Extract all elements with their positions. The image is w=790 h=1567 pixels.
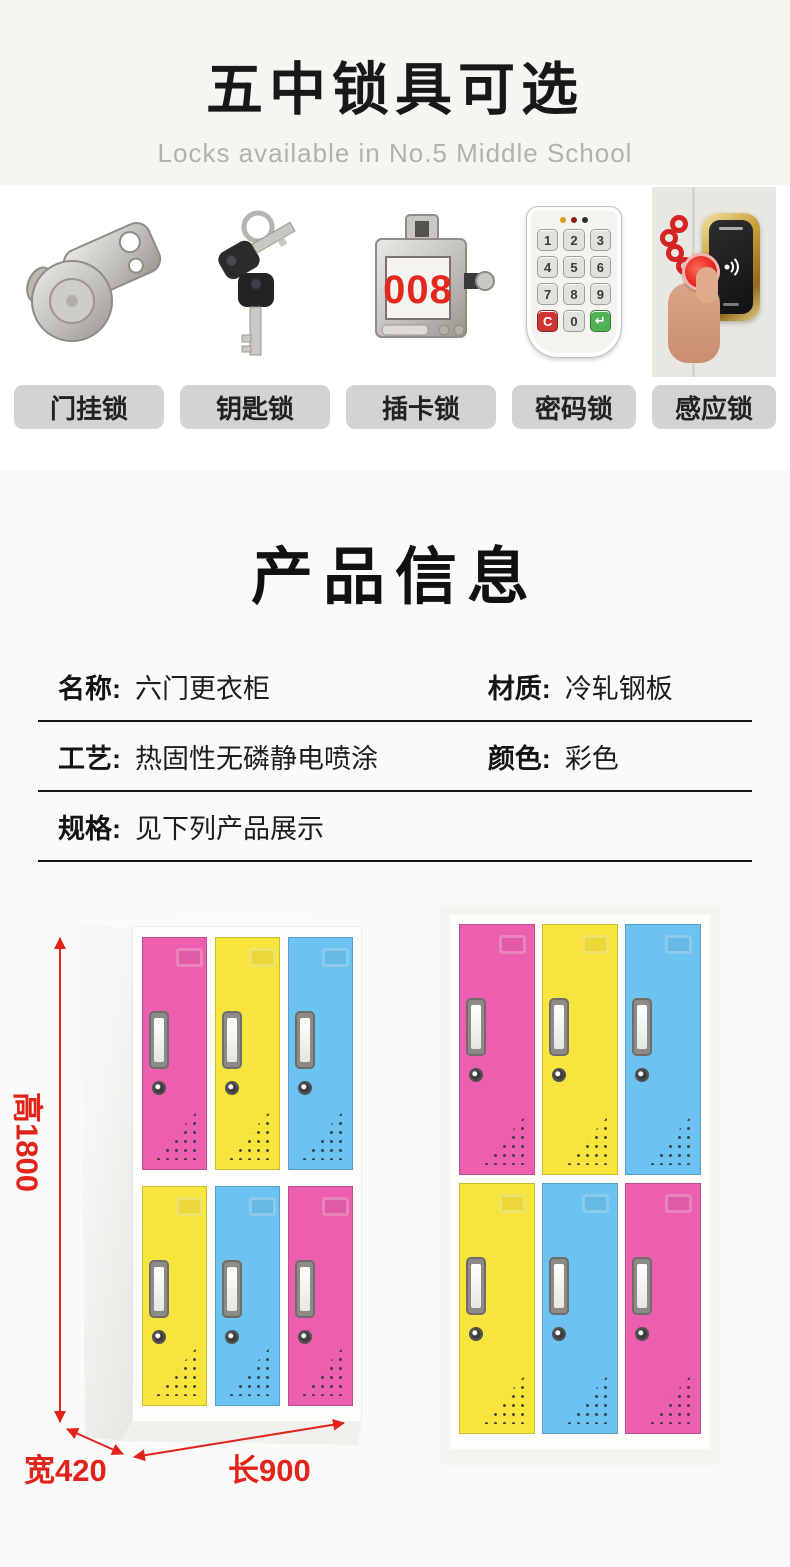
dimension-arrows: [0, 905, 400, 1525]
name-card-slot: [582, 935, 609, 954]
locker-door-yellow: [459, 1183, 535, 1434]
keys-photo: [180, 187, 330, 377]
rfid-lock-photo: [652, 187, 776, 377]
locker-door-pink: [459, 924, 535, 1175]
locker-frame: [450, 915, 710, 1449]
spec-cell: 材质: 冷轧钢板: [488, 667, 752, 706]
vent-holes: [482, 1115, 526, 1165]
keypad-key-7: 7: [537, 283, 558, 305]
lock-tile-cam: 门挂锁: [14, 187, 164, 429]
lock-tile-rfid: 感应锁: [652, 187, 776, 429]
section-title: 产品信息: [0, 470, 790, 616]
keypad-key-5: 5: [563, 256, 584, 278]
keyhole: [637, 1070, 647, 1080]
card-lock-icon: 008: [346, 187, 496, 377]
rfid-waves-icon: [719, 255, 743, 279]
spec-cell: 工艺: 热固性无磷静电喷涂: [38, 737, 488, 776]
vent-holes: [565, 1374, 609, 1424]
door-handle: [634, 1000, 650, 1054]
rfid-lock-icon: [652, 187, 776, 377]
height-dimension-label: 高1800: [8, 1092, 53, 1192]
keyhole: [471, 1070, 481, 1080]
spec-cell: 规格: 见下列产品展示: [38, 807, 488, 846]
locker-number-display: 008: [383, 268, 453, 312]
lock-tile-keys: 钥匙锁: [180, 187, 330, 429]
spec-label: 工艺:: [58, 737, 121, 776]
keypad-key-6: 6: [590, 256, 611, 278]
spec-cell: 名称: 六门更衣柜: [38, 667, 488, 706]
page-title: 五中锁具可选: [0, 0, 790, 126]
keyhole: [637, 1329, 647, 1339]
door-handle: [551, 1000, 567, 1054]
spec-label: 颜色:: [488, 737, 551, 776]
keypad-key-1: 1: [537, 229, 558, 251]
vent-holes: [482, 1374, 526, 1424]
keyhole: [554, 1329, 564, 1339]
led-red: [571, 217, 577, 223]
thumb: [696, 267, 718, 303]
lock-label-cam: 门挂锁: [14, 385, 164, 429]
header-section: 五中锁具可选 Locks available in No.5 Middle Sc…: [0, 0, 790, 185]
cam-lock-icon: [14, 187, 164, 377]
spec-value: 彩色: [565, 737, 619, 776]
keys-icon: [180, 187, 330, 377]
lock-label-card: 插卡锁: [346, 385, 496, 429]
name-card-slot: [665, 1194, 692, 1213]
keyhole: [471, 1329, 481, 1339]
page-subtitle: Locks available in No.5 Middle School: [0, 138, 790, 169]
locks-section: 门挂锁 钥匙锁: [0, 185, 790, 470]
width-dimension-label: 宽420: [24, 1445, 107, 1490]
spec-label: 名称:: [58, 667, 121, 706]
spec-table: 名称: 六门更衣柜 材质: 冷轧钢板 工艺: 热固性无磷静电喷涂 颜色: 彩色 …: [38, 652, 752, 862]
keypad-key-0: 0: [563, 310, 584, 332]
keypad-lock-icon: 1 2 3 4 5 6 7 8 9 C 0 ↵: [526, 206, 622, 358]
spec-label: 规格:: [58, 807, 121, 846]
keypad-key-enter: ↵: [590, 310, 611, 332]
vent-holes: [648, 1374, 692, 1424]
cam-lock-photo: [14, 187, 164, 377]
keypad-leds: [537, 217, 611, 223]
spec-value: 热固性无磷静电喷涂: [135, 737, 378, 776]
led-dark: [582, 217, 588, 223]
locks-grid: 门挂锁 钥匙锁: [0, 185, 790, 429]
spec-row: 工艺: 热固性无磷静电喷涂 颜色: 彩色: [38, 722, 752, 792]
spec-label: 材质:: [488, 667, 551, 706]
vent-holes: [565, 1115, 609, 1165]
lock-label-keys: 钥匙锁: [180, 385, 330, 429]
product-detail-page: { "header": { "title": "五中锁具可选", "subtit…: [0, 0, 790, 1567]
name-card-slot: [582, 1194, 609, 1213]
lockers-showcase: 高1800 宽420 长900: [0, 905, 790, 1567]
card-lock-photo: 008: [346, 187, 496, 377]
locker-front-view: [440, 905, 720, 1465]
spec-row: 名称: 六门更衣柜 材质: 冷轧钢板: [38, 652, 752, 722]
spec-value: 六门更衣柜: [135, 667, 270, 706]
locker-door-blue: [542, 1183, 618, 1434]
keypad-key-3: 3: [590, 229, 611, 251]
locker-door-pink: [625, 1183, 701, 1434]
keypad-key-4: 4: [537, 256, 558, 278]
vent-holes: [648, 1115, 692, 1165]
keypad-key-clear: C: [537, 310, 558, 332]
name-card-slot: [499, 935, 526, 954]
keypad-keys: 1 2 3 4 5 6 7 8 9 C 0 ↵: [537, 229, 611, 332]
lock-tile-keypad: 1 2 3 4 5 6 7 8 9 C 0 ↵ 密码锁: [512, 187, 636, 429]
name-card-slot: [499, 1194, 526, 1213]
door-handle: [468, 1000, 484, 1054]
length-dimension-label: 长900: [228, 1445, 311, 1490]
locker-door-yellow: [542, 924, 618, 1175]
door-handle: [551, 1259, 567, 1313]
keypad-lock-photo: 1 2 3 4 5 6 7 8 9 C 0 ↵: [512, 187, 636, 377]
lock-tile-card: 008 插卡锁: [346, 187, 496, 429]
door-handle: [468, 1259, 484, 1313]
keypad-key-8: 8: [563, 283, 584, 305]
name-card-slot: [665, 935, 692, 954]
led-amber: [560, 217, 566, 223]
keypad-key-2: 2: [563, 229, 584, 251]
keypad-key-9: 9: [590, 283, 611, 305]
door-handle: [634, 1259, 650, 1313]
lock-label-rfid: 感应锁: [652, 385, 776, 429]
spec-cell: 颜色: 彩色: [488, 737, 752, 776]
lock-label-keypad: 密码锁: [512, 385, 636, 429]
spec-value: 冷轧钢板: [565, 667, 673, 706]
spec-row: 规格: 见下列产品展示: [38, 792, 752, 862]
spec-value: 见下列产品展示: [135, 807, 324, 846]
locker-door-blue: [625, 924, 701, 1175]
keyhole: [554, 1070, 564, 1080]
